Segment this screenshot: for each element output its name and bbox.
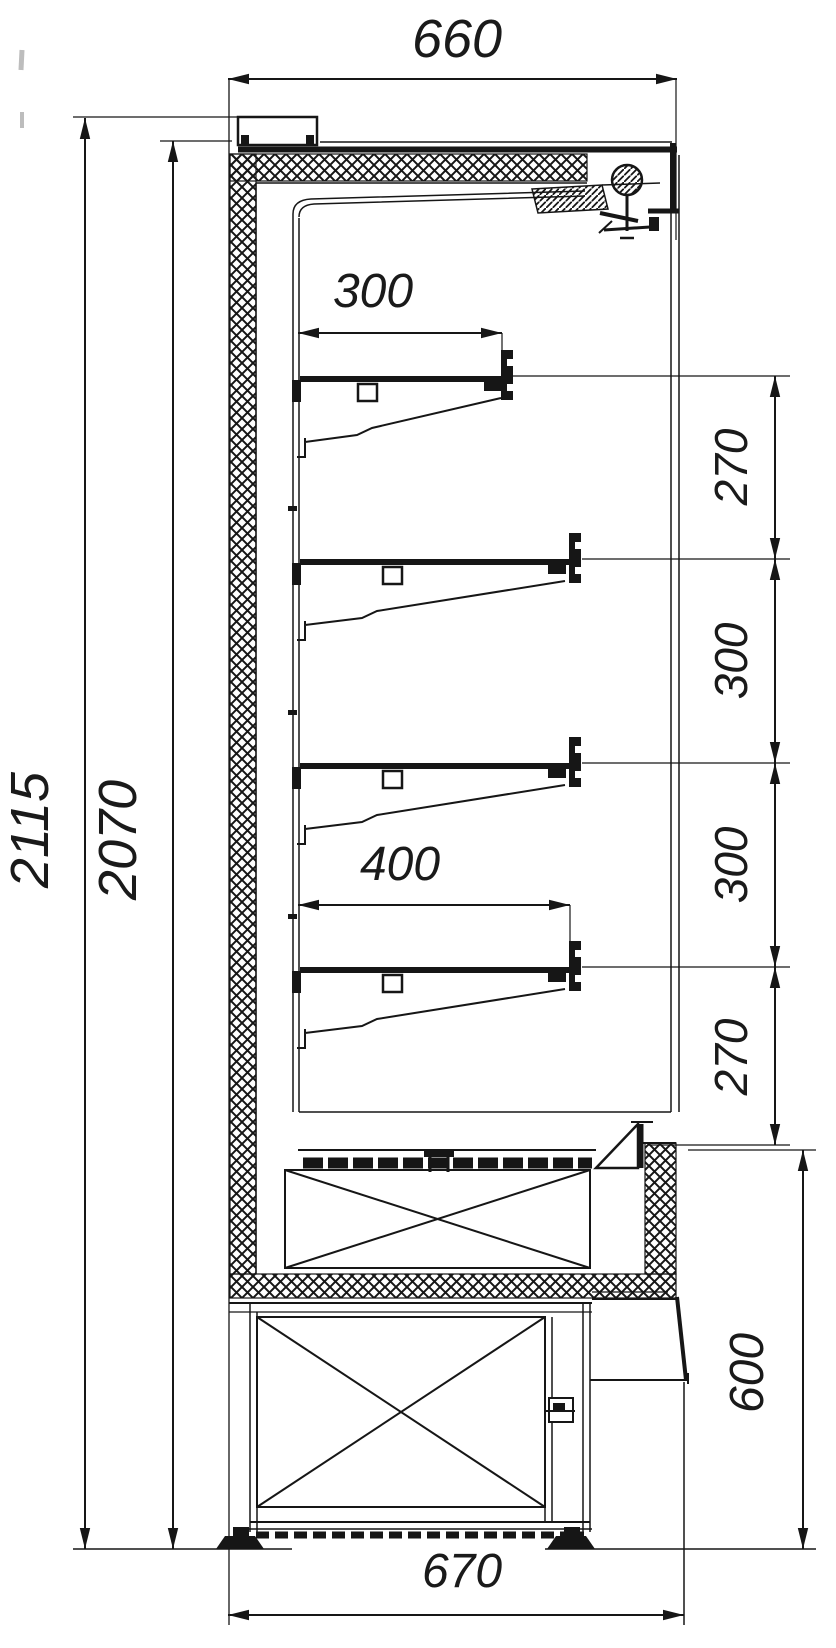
dim-text-spacing-3: 300 [705, 826, 757, 903]
wall-insulation [230, 154, 256, 1274]
cabinet-top-canopy [230, 117, 679, 238]
dim-text-spacing-4: 270 [705, 1018, 757, 1096]
shelf-4 [292, 941, 582, 1048]
dim-text-base-height: 600 [721, 1333, 774, 1413]
shelf-1 [292, 350, 514, 457]
return-air-grille [596, 1124, 638, 1168]
extension-lines [73, 79, 816, 1549]
base-front-insulation [645, 1143, 676, 1274]
shelf-bracket [297, 989, 565, 1048]
dim-text-spacing-1: 270 [705, 428, 757, 506]
dim-text-top-width: 660 [412, 9, 502, 69]
foot-base [547, 1536, 595, 1549]
shelf-2 [292, 533, 582, 640]
shelf-bracket [297, 581, 565, 640]
dim-text-interior-height: 2070 [88, 780, 148, 901]
evaporator-box [285, 1170, 590, 1268]
adjustable-feet [216, 1527, 595, 1549]
top-cap-box [238, 117, 317, 145]
condenser-tray [590, 1292, 688, 1384]
dim-text-lower-shelf-depth: 400 [360, 838, 440, 891]
price-rail [569, 737, 581, 787]
dim-text-bottom-width: 670 [422, 1545, 502, 1598]
lamp-tube-section [612, 165, 642, 195]
base-bottom-insulation [230, 1274, 676, 1298]
rear-insulated-wall [229, 79, 299, 1625]
dim-text-overall-height: 2115 [0, 771, 60, 889]
shelf-3 [292, 737, 582, 844]
top-insulation [230, 154, 587, 181]
engineering-drawing-sheet: 660 2115 2070 300 400 270 300 300 270 60… [0, 0, 836, 1648]
compressor-box [257, 1317, 545, 1507]
price-rail [569, 941, 581, 991]
dim-text-spacing-2: 300 [705, 622, 757, 699]
air-outlet-honeycomb [532, 185, 608, 213]
cabinet-section-drawing: 660 2115 2070 300 400 270 300 300 270 60… [0, 0, 836, 1648]
scan-artifact [21, 50, 22, 128]
price-rail [569, 533, 581, 583]
shelf-bracket [297, 785, 565, 844]
price-rail [501, 350, 513, 400]
dim-text-top-shelf-depth: 300 [333, 265, 413, 318]
front-opening-edge [671, 155, 679, 1112]
shelf-bracket [297, 398, 501, 457]
dimension-arrowheads [80, 74, 808, 1620]
base-deck-area [230, 1112, 676, 1298]
